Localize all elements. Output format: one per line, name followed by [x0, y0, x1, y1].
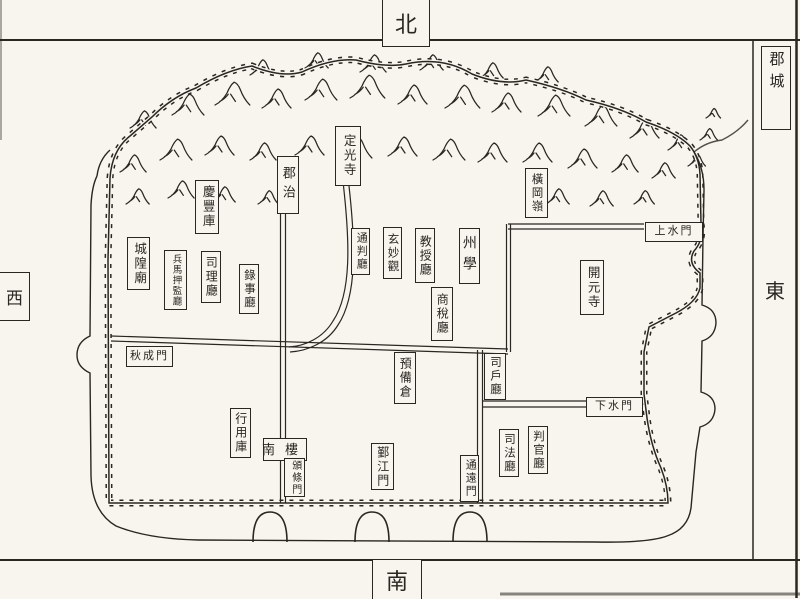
frame-lines: [0, 0, 800, 598]
label-circulating-treasury: 行用庫: [230, 408, 251, 458]
label-xuanmiao-abbey: 玄妙觀: [383, 227, 402, 279]
label-reserve-granary: 預備倉: [394, 352, 416, 404]
label-prefectural-school: 州學: [459, 228, 480, 284]
label-justice-office: 司法廳: [499, 429, 519, 477]
city-wall: [108, 60, 702, 503]
south-label: 南: [372, 559, 422, 599]
label-qiucheng-gate: 秋成門: [126, 346, 173, 367]
label-tongpan-office: 通判廳: [351, 228, 370, 275]
label-registrar-office: 錄事廳: [239, 264, 259, 314]
label-lower-water-gate: 下水門: [586, 397, 643, 417]
label-upper-water-gate: 上水門: [645, 222, 703, 242]
label-prefecture-seat: 郡治: [277, 156, 299, 214]
label-sihu-office: 司戶廳: [484, 353, 506, 400]
label-judge-office: 判官廳: [528, 426, 548, 474]
label-sili-office: 司理廳: [201, 251, 221, 303]
north-label: 北: [382, 0, 430, 47]
label-kaiyuan-temple: 開元寺: [580, 260, 604, 315]
gate-arches: [253, 512, 487, 542]
label-professor-office: 教授廳: [415, 228, 435, 283]
label-city-god-temple: 城隍廟: [127, 237, 150, 290]
label-military-commissioner-office: 兵馬押監廳: [164, 250, 187, 310]
label-henggang-ridge: 橫岡嶺: [525, 168, 548, 218]
label-yinjiang-gate: 鄞江門: [371, 443, 394, 490]
label-tongyuan-gate: 通遠門: [460, 455, 479, 502]
label-commercial-tax-office: 商稅廳: [431, 287, 453, 341]
map-drawing: [0, 0, 800, 598]
label-bantiao-gate: 頒條門: [284, 458, 305, 497]
label-dingguang-temple: 定光寺: [335, 126, 361, 186]
east-label: 東: [757, 272, 793, 306]
west-label: 西: [0, 272, 30, 321]
prefecture-city-margin-label: 郡城: [761, 46, 791, 130]
label-qingfeng-storehouse: 慶豐庫: [195, 180, 219, 234]
